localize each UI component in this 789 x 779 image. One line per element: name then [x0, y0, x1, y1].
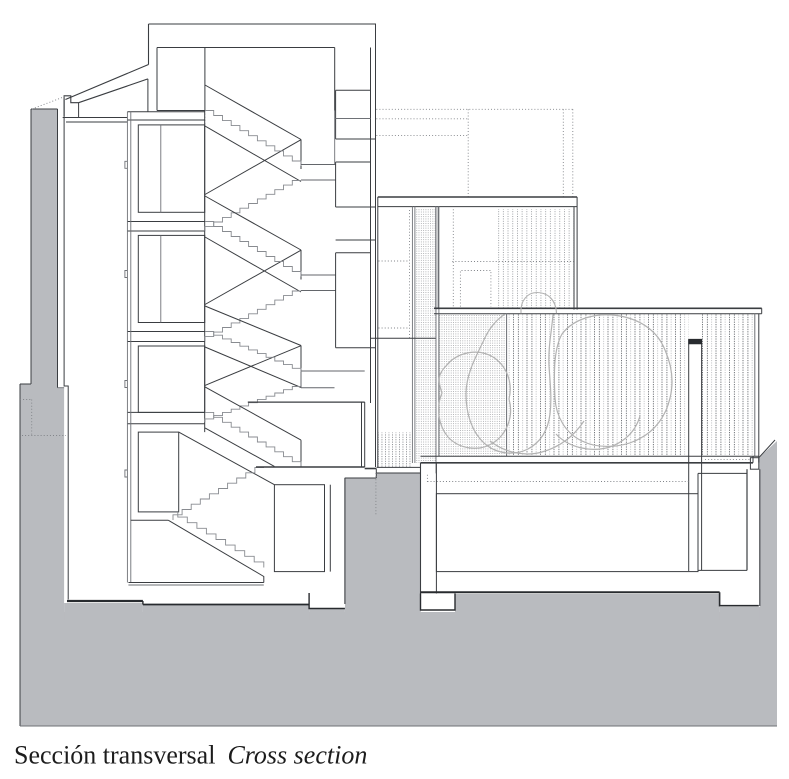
svg-text:Sección transversalCross secti: Sección transversalCross section	[14, 741, 367, 770]
